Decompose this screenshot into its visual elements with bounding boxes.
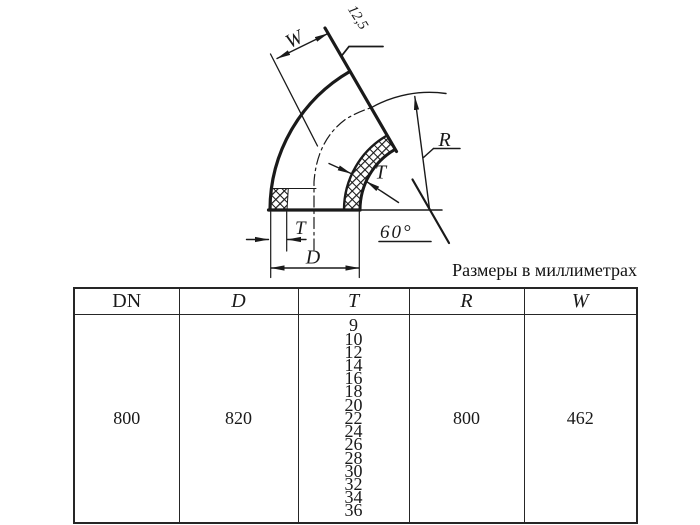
col-header-t: T — [298, 288, 409, 315]
col-header-w: W — [524, 288, 637, 315]
roughness-label: 12,5 — [344, 3, 371, 33]
cell-d: 820 — [179, 315, 298, 524]
w-dim-label: W — [282, 25, 309, 53]
thickness-top-label: T — [375, 162, 388, 184]
centerline-extension-arc — [371, 92, 446, 107]
angle-label: 60° — [380, 222, 413, 243]
w-extension-line — [271, 54, 318, 146]
thickness-bottom-label: T — [295, 218, 307, 239]
table-caption: Размеры в миллиметрах — [300, 260, 637, 280]
angle-60-line — [413, 180, 450, 244]
col-header-r: R — [409, 288, 524, 315]
col-header-d: D — [179, 288, 298, 315]
dimensions-table: DN D T R W 800 820 9 10 12 14 16 18 20 2… — [73, 287, 638, 524]
radius-label-leader — [424, 149, 434, 158]
elbow-section-drawing: W 12,5 R T 60° T D — [0, 0, 700, 290]
col-header-dn: DN — [74, 288, 179, 315]
document-page: W 12,5 R T 60° T D Размеры в миллиметрах… — [0, 0, 700, 525]
thickness-arrow-right — [367, 182, 399, 203]
cell-dn: 800 — [74, 315, 179, 524]
table-header-row: DN D T R W — [74, 288, 637, 315]
cell-t-values: 9 10 12 14 16 18 20 22 24 26 28 30 32 34… — [298, 315, 409, 524]
radius-dimension-line — [415, 97, 430, 210]
thickness-arrow-left — [329, 164, 351, 174]
table-data-row: 800 820 9 10 12 14 16 18 20 22 24 26 28 … — [74, 315, 637, 524]
roughness-symbol — [342, 47, 384, 57]
left-wall-section-hatch — [270, 189, 288, 211]
cell-w: 462 — [524, 315, 637, 524]
cell-r: 800 — [409, 315, 524, 524]
radius-label: R — [438, 129, 451, 151]
